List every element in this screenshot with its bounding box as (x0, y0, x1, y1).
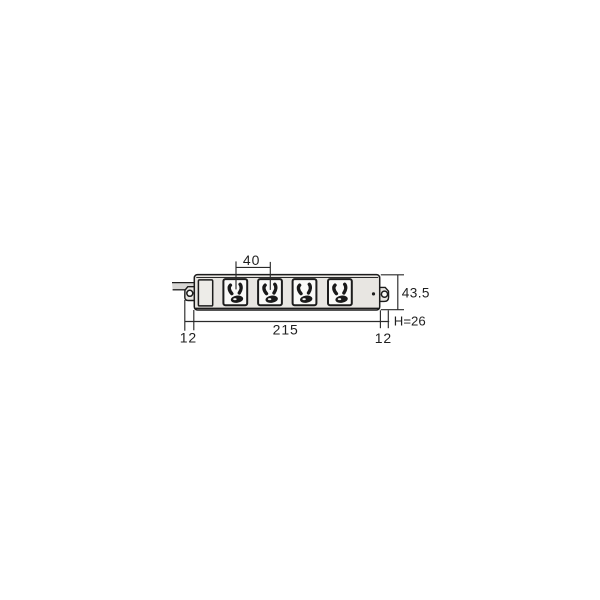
svg-text:12: 12 (375, 330, 392, 346)
svg-text:43.5: 43.5 (402, 286, 430, 301)
svg-text:215: 215 (273, 322, 299, 338)
svg-text:40: 40 (243, 252, 260, 268)
svg-text:H=26: H=26 (394, 314, 426, 329)
svg-text:12: 12 (180, 330, 197, 346)
